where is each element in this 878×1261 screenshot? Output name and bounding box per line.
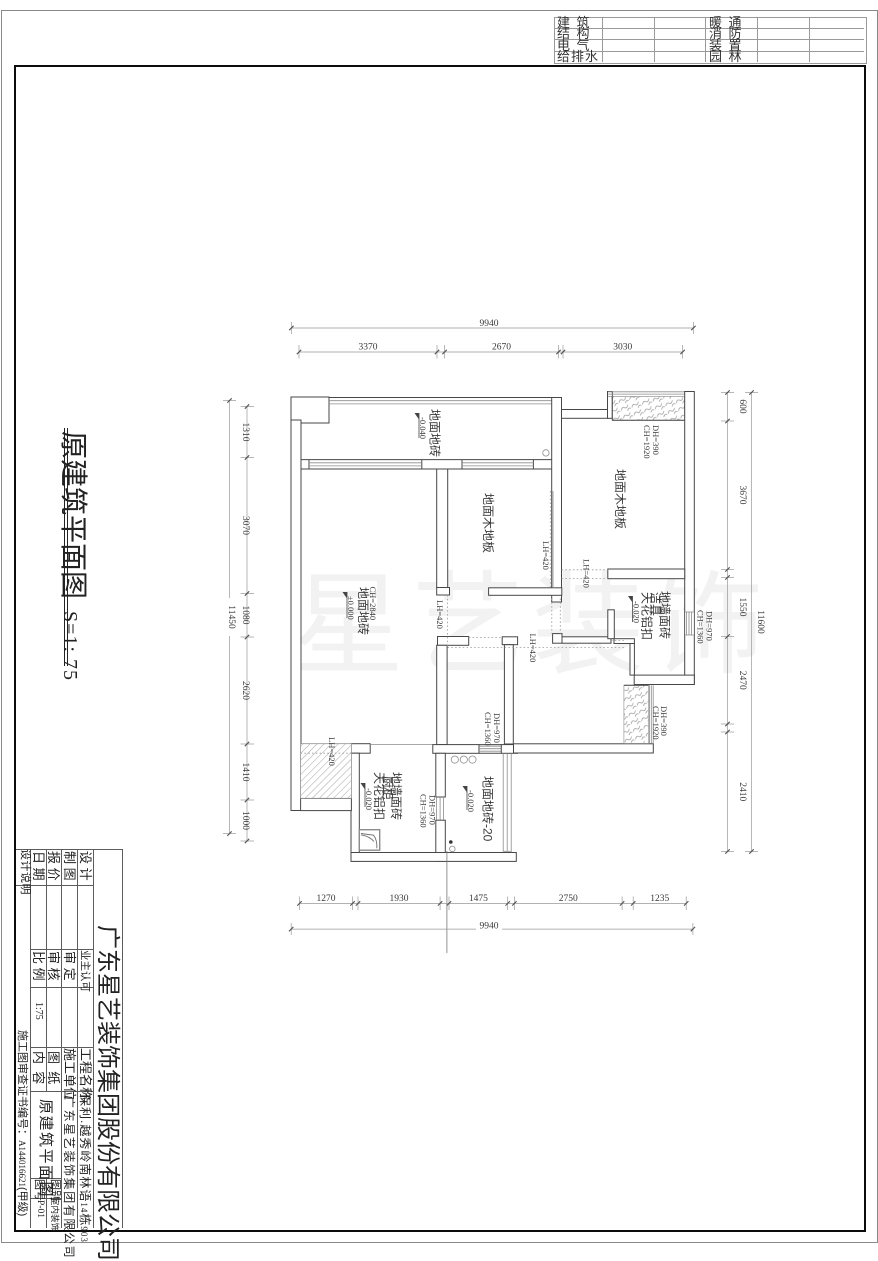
svg-text:1930: 1930	[390, 894, 409, 904]
svg-text:CH=1360: CH=1360	[483, 712, 493, 746]
svg-text:LH=420: LH=420	[528, 634, 538, 663]
svg-text:地面木地板: 地面木地板	[481, 493, 495, 553]
svg-text:9940: 9940	[480, 922, 499, 932]
svg-text:2470: 2470	[737, 671, 747, 690]
svg-text:地面木地板: 地面木地板	[613, 469, 627, 529]
svg-text:-0.040: -0.040	[418, 417, 428, 439]
svg-text:2410: 2410	[737, 782, 747, 801]
svg-text:CH=1360: CH=1360	[419, 794, 429, 828]
svg-text:1550: 1550	[737, 598, 747, 617]
svg-text:2750: 2750	[559, 894, 578, 904]
svg-text:600: 600	[737, 399, 747, 414]
svg-text:1310: 1310	[240, 423, 250, 442]
svg-text:1000: 1000	[240, 811, 250, 830]
svg-text:9940: 9940	[480, 319, 499, 329]
svg-text:1410: 1410	[240, 763, 250, 782]
svg-text:CH=1360: CH=1360	[696, 610, 706, 644]
svg-text:11450: 11450	[226, 605, 236, 629]
svg-text:地面地砖-20: 地面地砖-20	[481, 776, 496, 842]
svg-text:3670: 3670	[737, 486, 747, 505]
svg-text:11600: 11600	[755, 610, 765, 634]
svg-text:1270: 1270	[317, 894, 336, 904]
svg-text:3030: 3030	[613, 343, 632, 353]
svg-text:地面地砖: 地面地砖	[428, 409, 443, 457]
svg-text:1080: 1080	[240, 606, 250, 625]
svg-text:1235: 1235	[650, 894, 669, 904]
svg-text:±0.000: ±0.000	[346, 596, 356, 620]
svg-text:-0.020: -0.020	[364, 788, 374, 810]
svg-text:LH=420: LH=420	[582, 559, 592, 588]
svg-text:LH=420: LH=420	[435, 600, 445, 629]
svg-text:-0.020: -0.020	[632, 601, 642, 623]
svg-text:LH=420: LH=420	[327, 737, 337, 766]
svg-text:1475: 1475	[469, 894, 488, 904]
svg-text:CH=1920: CH=1920	[642, 425, 652, 459]
svg-text:LH=420: LH=420	[541, 541, 551, 570]
svg-text:3370: 3370	[359, 343, 378, 353]
svg-text:3070: 3070	[240, 516, 250, 535]
svg-text:2670: 2670	[492, 343, 511, 353]
svg-text:2620: 2620	[240, 681, 250, 700]
svg-text:CH=1920: CH=1920	[651, 706, 661, 740]
svg-text:地面地砖: 地面地砖	[356, 587, 371, 635]
svg-text:-0.020: -0.020	[466, 790, 476, 812]
